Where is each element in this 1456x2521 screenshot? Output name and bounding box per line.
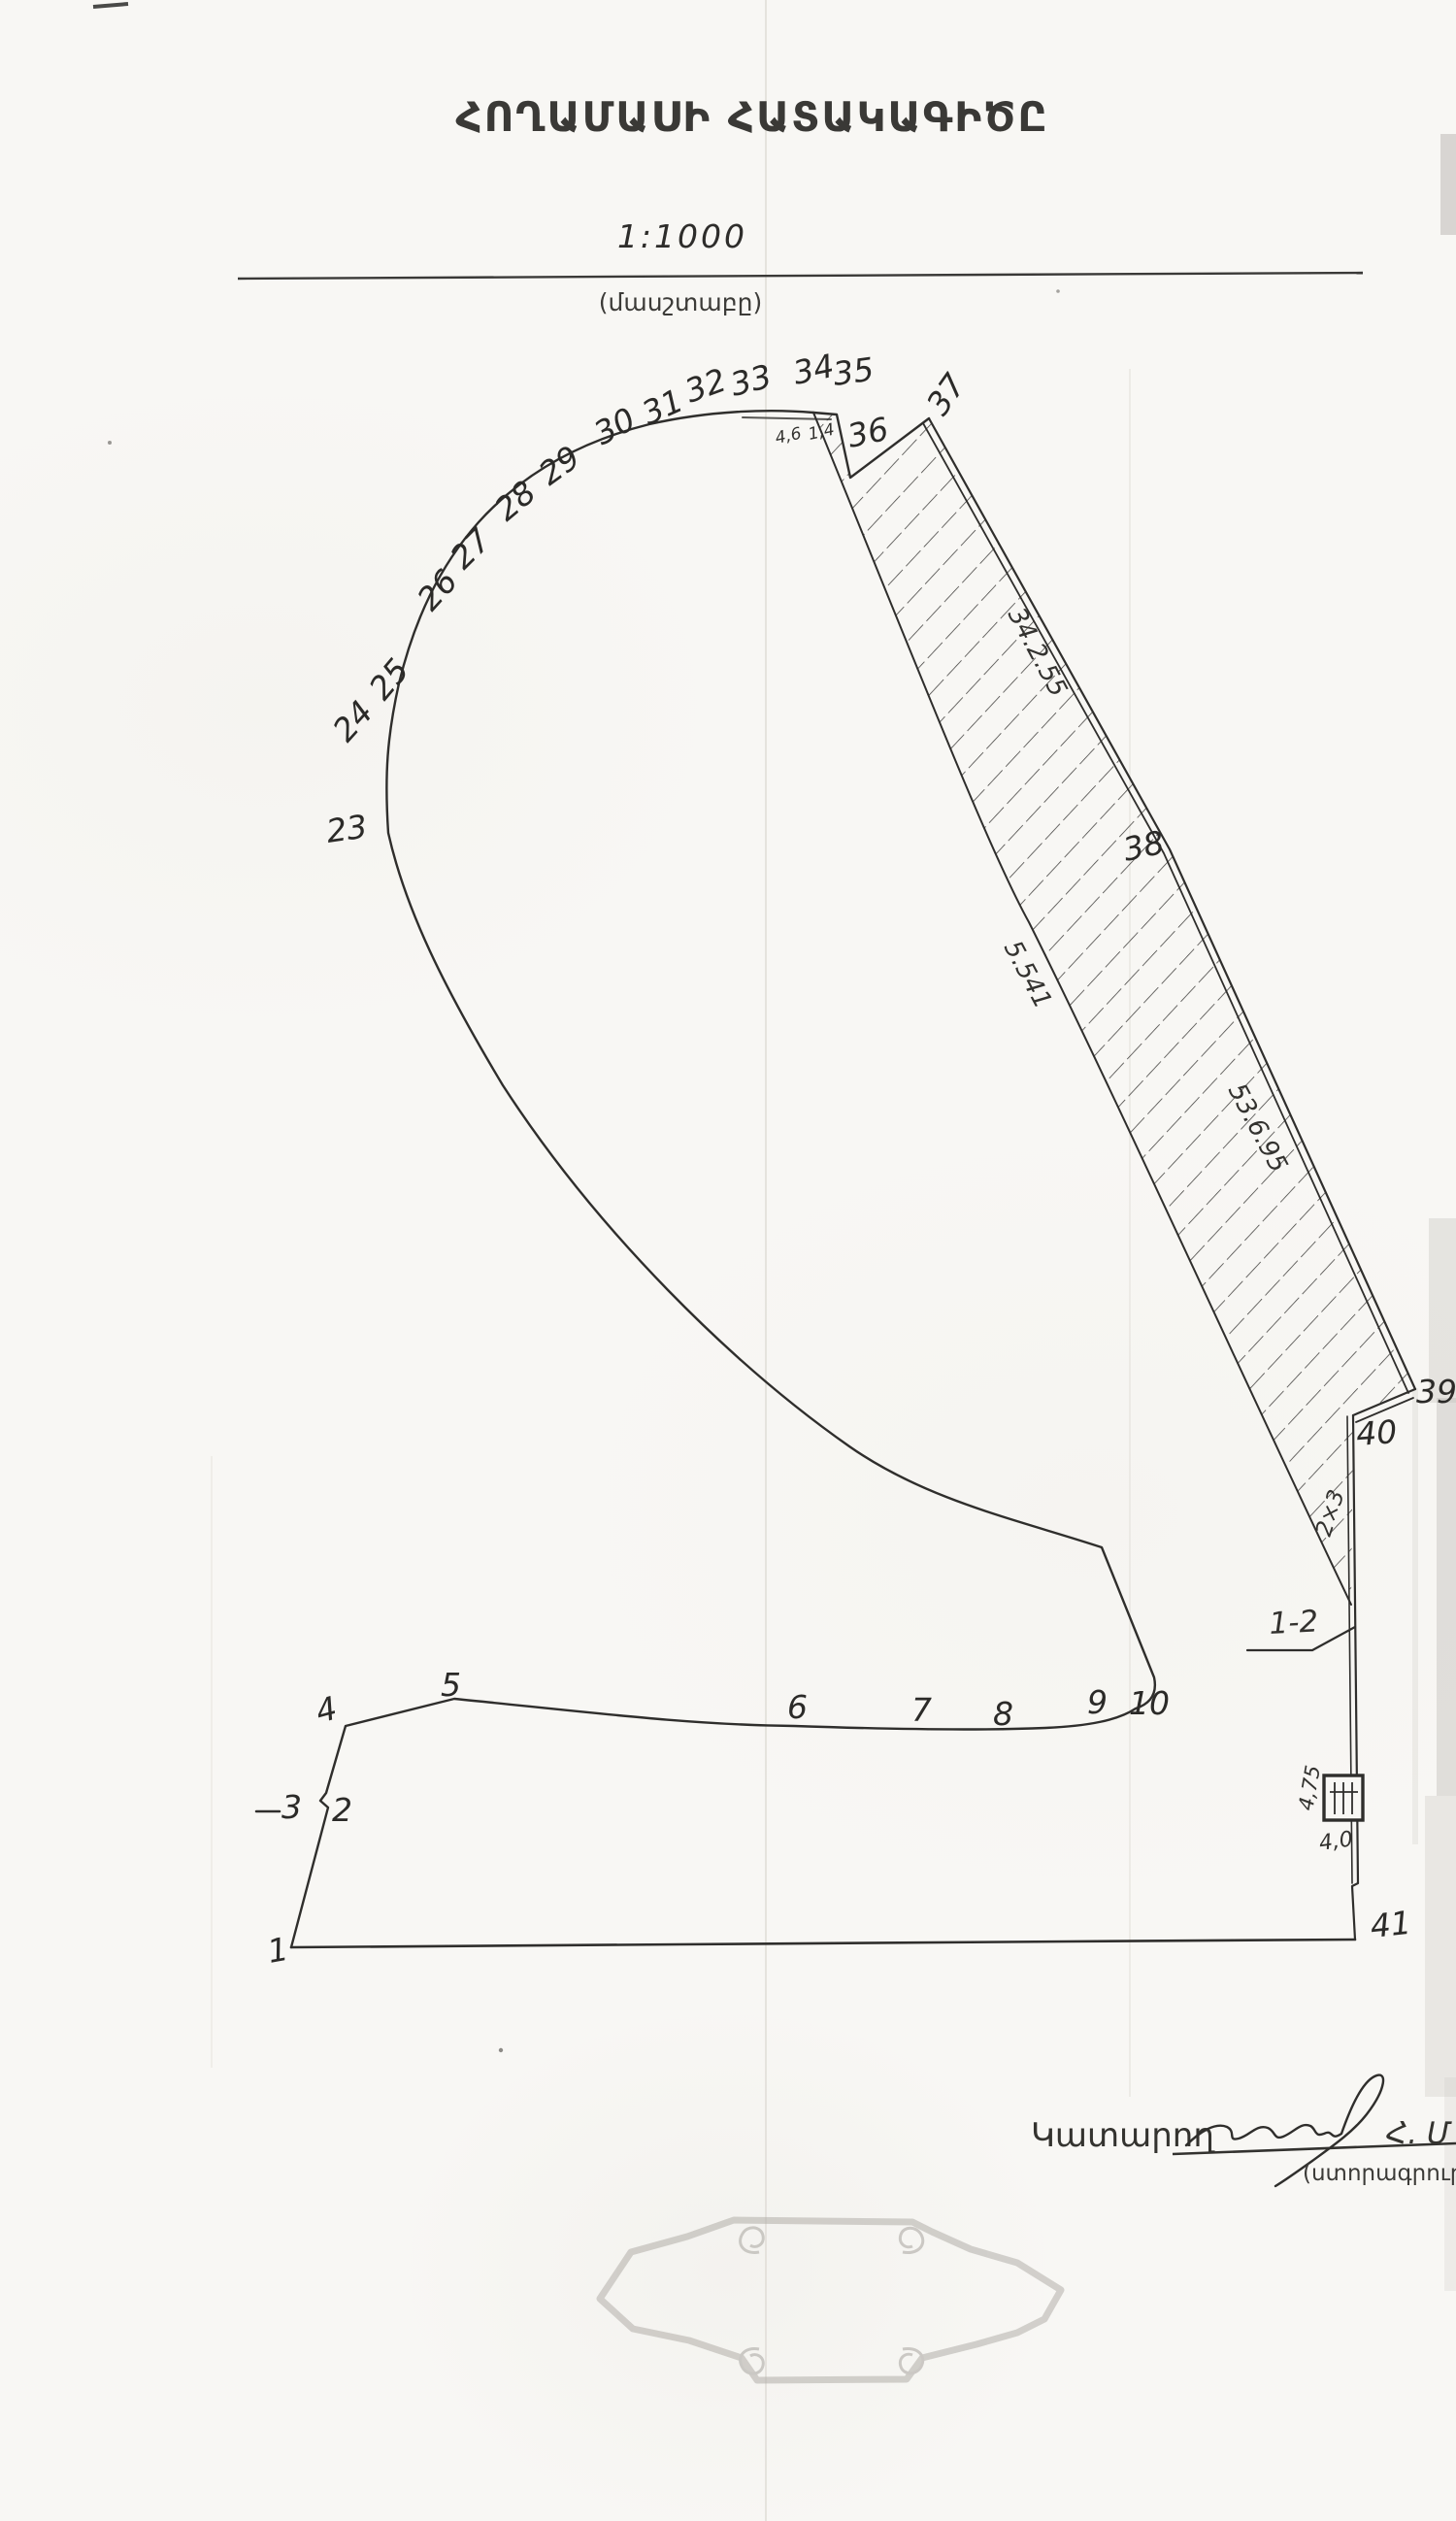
parcel-geometry xyxy=(256,291,1456,1947)
stamp-outline xyxy=(600,2220,1061,2380)
structure-box xyxy=(1324,1775,1363,1820)
parcel-ref-label: 1-2 xyxy=(1269,1604,1319,1642)
point-label-23: 23 xyxy=(324,807,370,849)
point-label-41: 41 xyxy=(1369,1904,1413,1945)
executor-name: Հ. Մ xyxy=(1386,2116,1452,2151)
point-label-6: 6 xyxy=(787,1688,808,1726)
point-label-35: 35 xyxy=(831,349,877,392)
point-label-36: 36 xyxy=(844,410,892,455)
measure-seg-33-34: 4,6 xyxy=(774,424,804,448)
point-label-40: 40 xyxy=(1355,1412,1399,1453)
point-label-8: 8 xyxy=(993,1695,1013,1733)
point-label-9: 9 xyxy=(1087,1683,1108,1721)
point-label-39: 39 xyxy=(1416,1373,1456,1410)
stamp-curl-tl xyxy=(741,2228,764,2253)
point-label-4: 4 xyxy=(312,1689,341,1731)
scale-rule xyxy=(238,273,1363,279)
point-label-28: 28 xyxy=(487,473,543,528)
point-label-7: 7 xyxy=(911,1691,932,1729)
point-label-33: 33 xyxy=(727,357,776,404)
point-label-34: 34 xyxy=(790,347,838,392)
point-label-10: 10 xyxy=(1129,1684,1170,1722)
header: ՀՈՂԱՄԱՍԻ ՀԱՏԱԿԱԳԻԾԸ 1:1000 (մասշտաբը) xyxy=(238,93,1363,316)
point-label-26: 26 xyxy=(410,562,465,617)
scale-caption: (մասշտաբը) xyxy=(599,288,762,316)
point-label-24: 24 xyxy=(325,693,381,748)
point-label-3: 3 xyxy=(281,1788,302,1826)
point-label-30: 30 xyxy=(587,400,641,452)
point-label-5: 5 xyxy=(441,1666,461,1704)
executor-label: Կատարող xyxy=(1031,2116,1215,2155)
measure-box-side: 4,75 xyxy=(1294,1764,1325,1812)
signature-caption: (ստորագրությունը) xyxy=(1303,2161,1456,2186)
point-label-2: 2 xyxy=(332,1791,352,1829)
stamp-imprint xyxy=(600,2220,1061,2380)
footer: Կատարող Հ. Մ (ստորագրությունը) xyxy=(1031,2075,1456,2186)
bottom-boundary xyxy=(291,1940,1355,1947)
measure-box-bottom: 4,0 xyxy=(1317,1827,1354,1856)
point-label-37: 37 xyxy=(919,367,974,422)
scale-value: 1:1000 xyxy=(617,217,747,255)
page-title: ՀՈՂԱՄԱՍԻ ՀԱՏԱԿԱԳԻԾԸ xyxy=(455,93,1048,141)
stamp-curl-tr xyxy=(900,2228,922,2252)
point-label-27: 27 xyxy=(443,520,498,576)
plan-drawing: ՀՈՂԱՄԱՍԻ ՀԱՏԱԿԱԳԻԾԸ 1:1000 (մասշտաբը) xyxy=(0,0,1456,2521)
right-boundary xyxy=(1352,1415,1358,1940)
point-label-25: 25 xyxy=(361,651,416,707)
scanned-page: { "page": { "title": "ՀՈՂԱՄԱՍԻ ՀԱՏԱԿԱԳԻԾ… xyxy=(0,0,1456,2521)
point-label-1: 1 xyxy=(265,1930,291,1971)
measurement-labels: 4,6 1,4 34.2.55 5.541 53.6.95 2×3 4,75 4… xyxy=(774,420,1355,1856)
point-label-29: 29 xyxy=(532,438,587,492)
point-label-32: 32 xyxy=(679,361,731,411)
